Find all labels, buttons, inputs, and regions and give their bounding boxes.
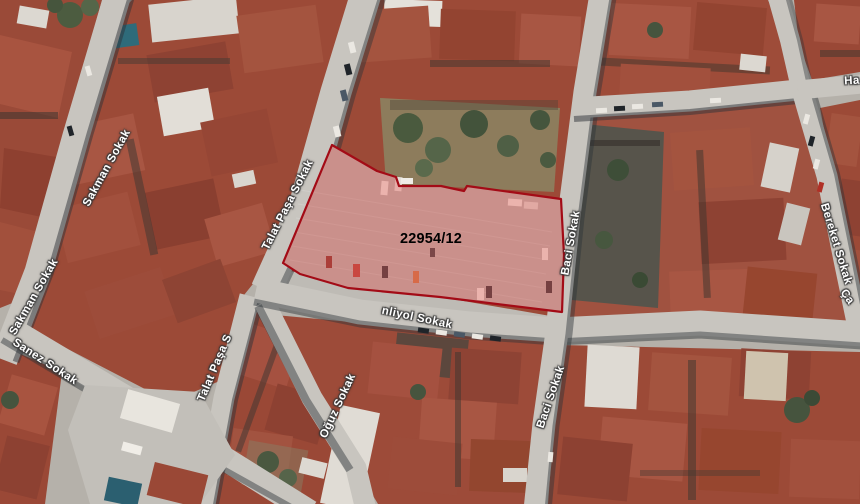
satellite-map[interactable]: Sakman Sokak Sakman Sokak Sanez Sokak Ta… [0,0,860,504]
street-ha-stub [798,84,860,90]
satellite-imagery [0,0,860,504]
